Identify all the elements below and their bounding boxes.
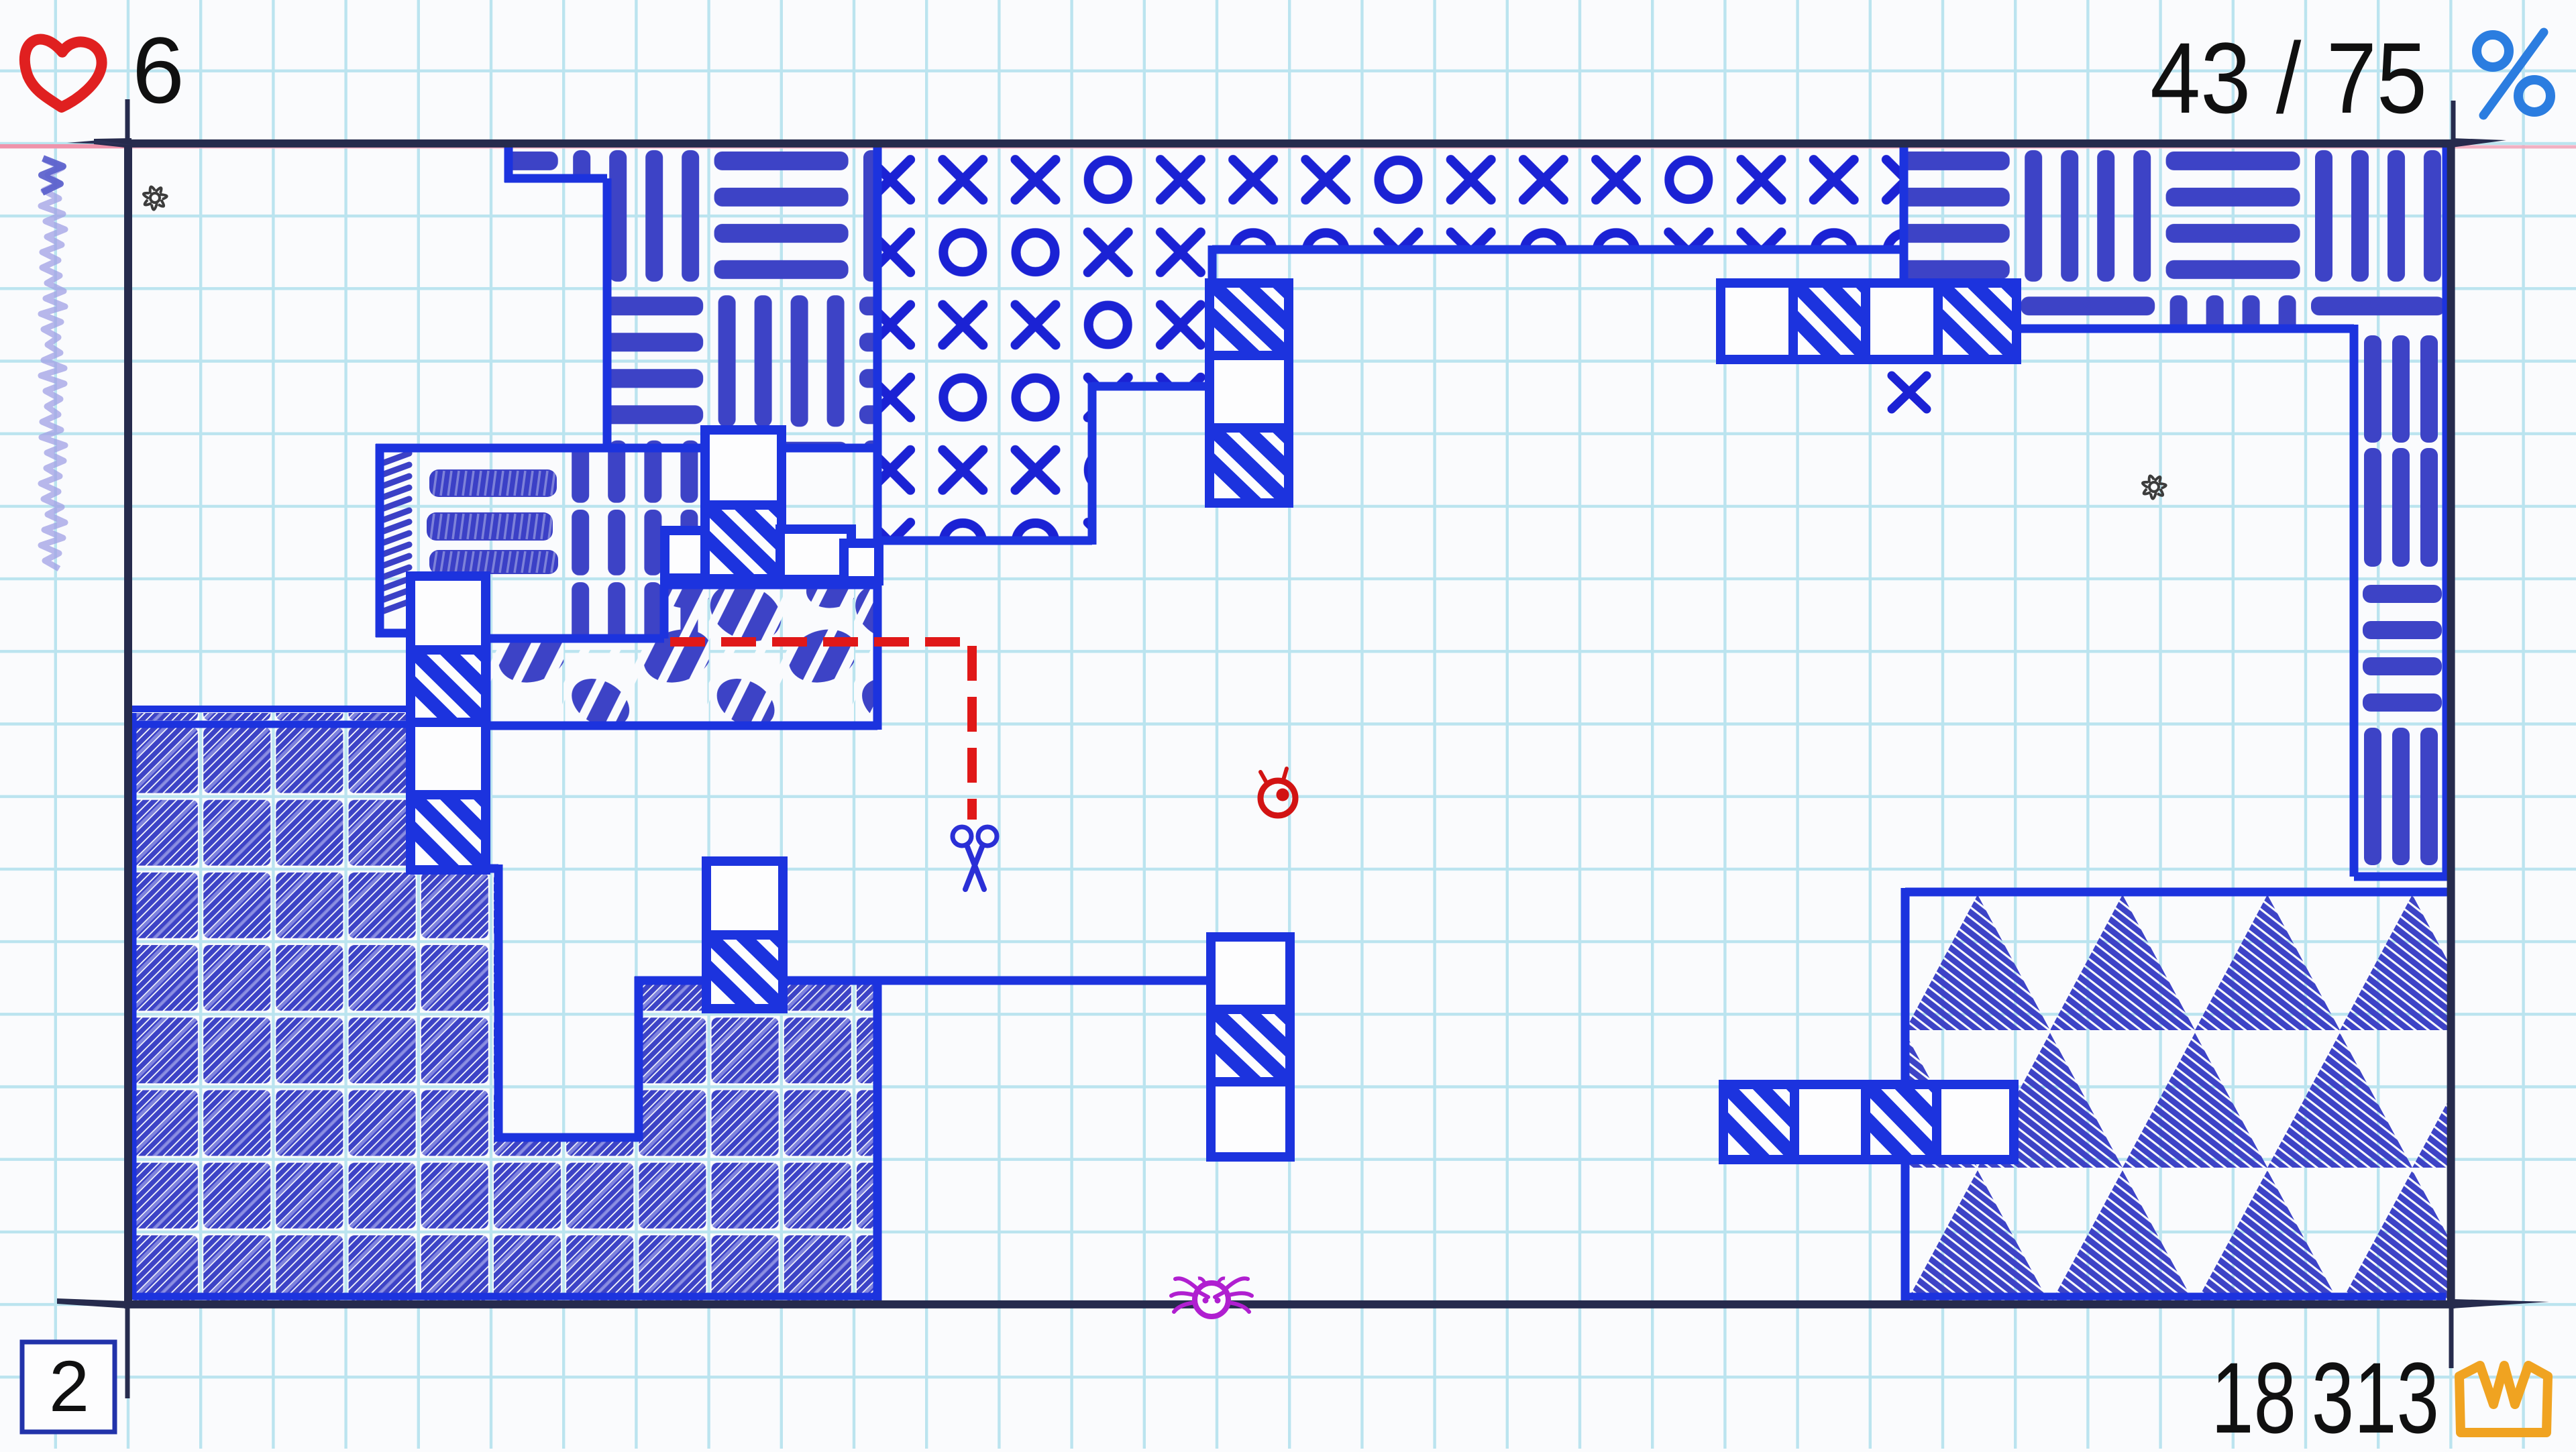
svg-text:6: 6 <box>132 17 184 123</box>
svg-text:2: 2 <box>49 1345 89 1427</box>
svg-text:43 / 75: 43 / 75 <box>2150 22 2427 134</box>
svg-text:18 313: 18 313 <box>2211 1342 2439 1449</box>
